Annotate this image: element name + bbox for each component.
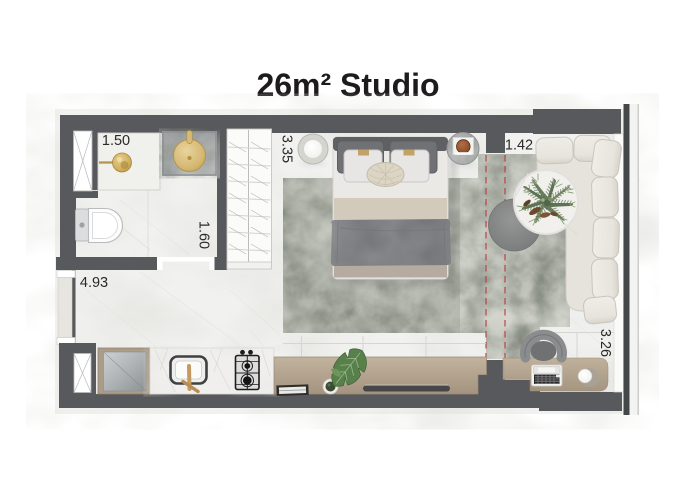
svg-text:1.50: 1.50 — [102, 133, 130, 149]
svg-text:1.60: 1.60 — [196, 221, 212, 249]
svg-text:1.42: 1.42 — [505, 138, 533, 154]
svg-text:4.93: 4.93 — [80, 275, 108, 291]
svg-text:3.35: 3.35 — [279, 135, 295, 163]
svg-text:3.26: 3.26 — [597, 329, 613, 357]
svg-text:26m² Studio: 26m² Studio — [256, 67, 439, 103]
